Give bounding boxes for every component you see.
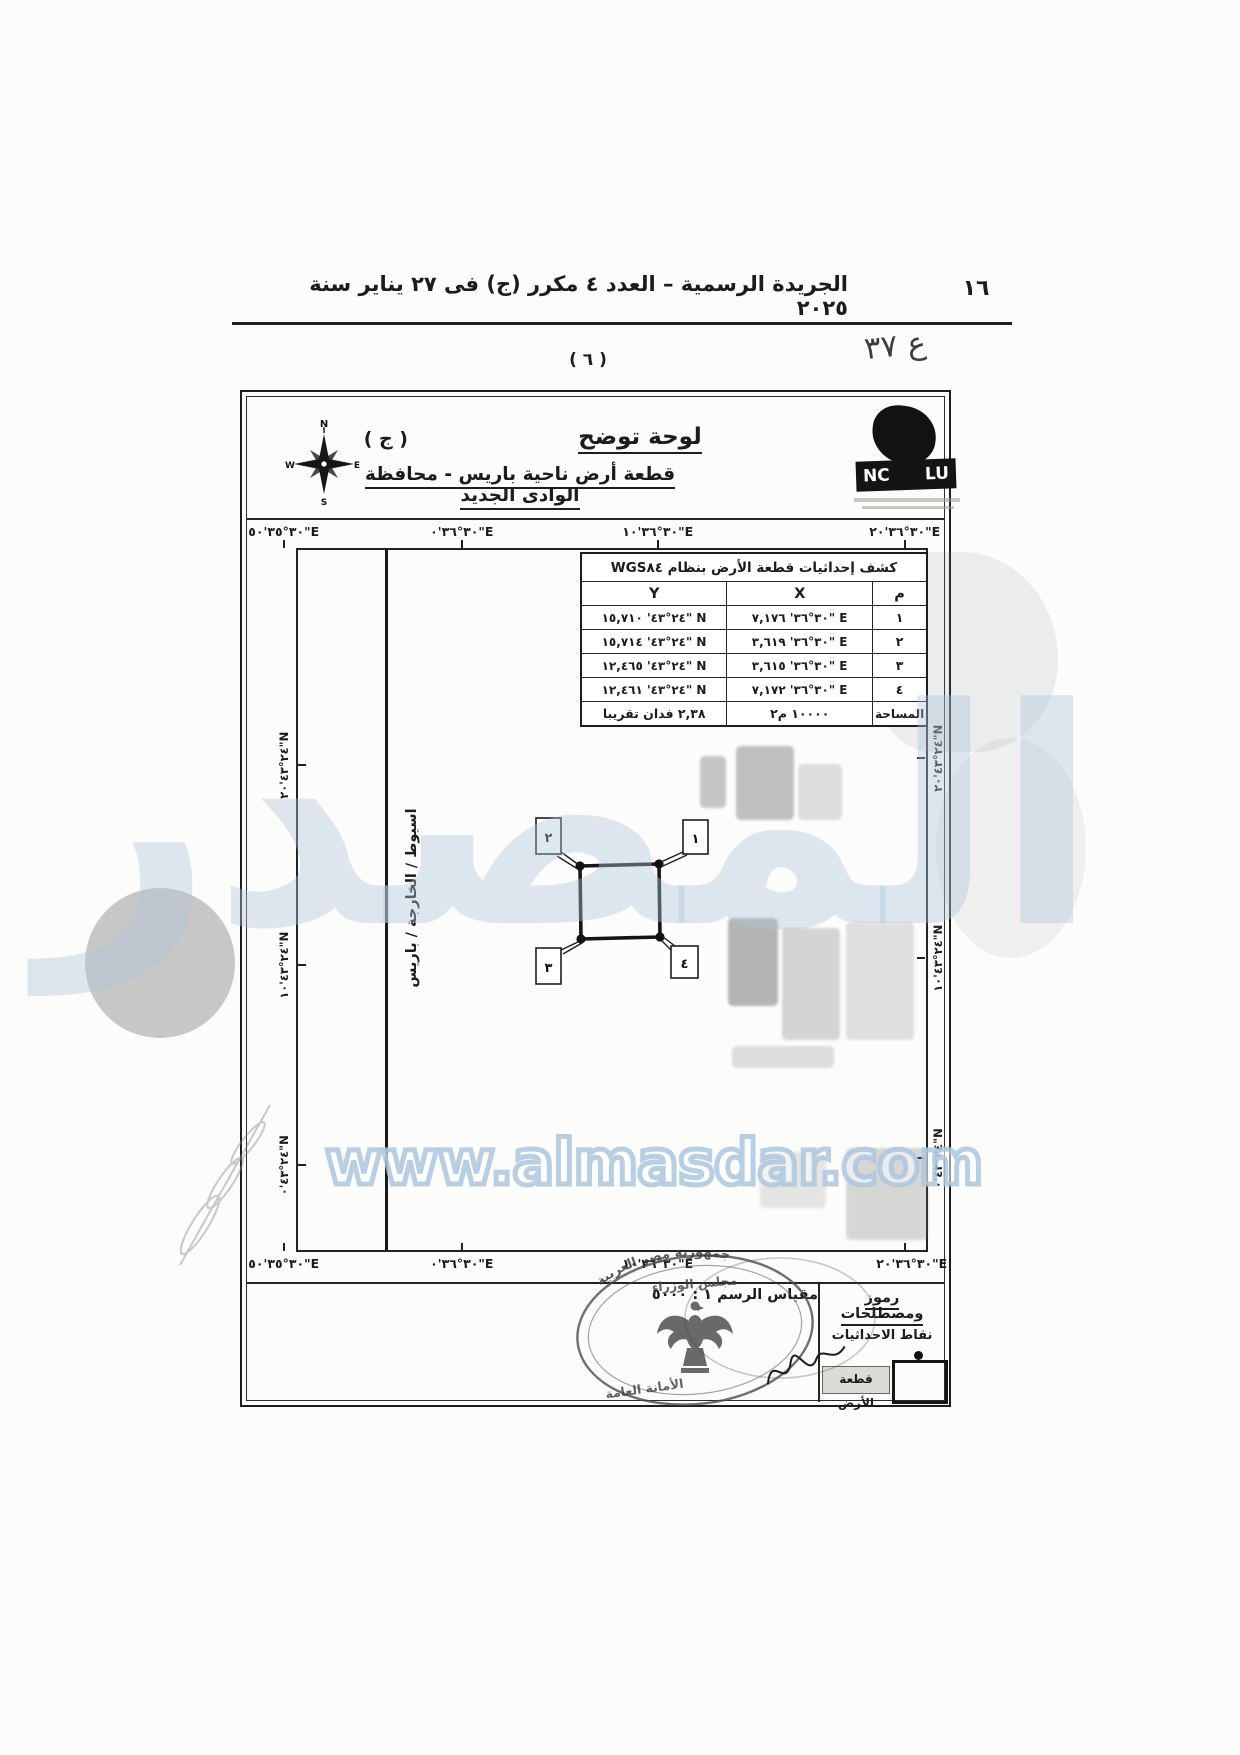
logo-banner: NC LU: [856, 458, 957, 491]
point-y: ٢٤°٤٣' ١٢,٤٦٥" N: [581, 654, 727, 678]
latitude-label-left: ٢٤°٤٣'١٠"N: [277, 910, 291, 1020]
area-square-meters: ١٠٠٠٠ م٢: [727, 702, 873, 727]
point-number: ٤: [873, 678, 927, 702]
point-x: ٣٠°٣٦' ٣,٦١٩" E: [727, 630, 873, 654]
road-label: اسيوط / الخارجة / باريس: [404, 798, 422, 998]
plot-polygon-figure: ٢ ١ ٣ ٤: [520, 800, 740, 1000]
table-row: ٤ ٣٠°٣٦' ٧,١٧٢" E ٢٤°٤٣' ١٢,٤٦١" N: [581, 678, 927, 702]
coordinate-point-symbol: [914, 1351, 923, 1360]
corner-label: ٤: [681, 957, 689, 972]
point-y: ٢٤°٤٣' ١٢,٤٦١" N: [581, 678, 727, 702]
logo-caption-line: [862, 506, 954, 509]
sheet-subtitle-text: قطعة أرض ناحية باريس - محافظة الوادى الج…: [365, 464, 675, 510]
scan-smudge: [798, 764, 842, 820]
eagle-emblem-icon: [657, 1302, 733, 1374]
point-number: ١: [873, 606, 927, 630]
scan-smudge: [846, 922, 914, 1040]
header-rule: [232, 322, 1012, 325]
graticule-tick: [904, 540, 906, 548]
longitude-label-top: ٣٠°٣٦'١٠"E: [603, 524, 713, 539]
longitude-label-bottom: ٣٠°٣٦'٠"E: [407, 1256, 517, 1271]
point-y: ٢٤°٤٣' ١٥,٧١٤" N: [581, 630, 727, 654]
handwritten-note: ع ٣٧: [824, 325, 927, 371]
logo-emblem-icon: [869, 402, 940, 467]
logo-text-left: NC: [863, 466, 890, 487]
compass-south-label: S: [321, 498, 327, 506]
table-row: ١ ٣٠°٣٦' ٧,١٧٦" E ٢٤°٤٣' ١٥,٧١٠" N: [581, 606, 927, 630]
col-header-x: X: [727, 582, 873, 606]
scan-smudge: [846, 1148, 928, 1240]
watermark-blob: [936, 738, 1086, 958]
point-x: ٣٠°٣٦' ٣,٦١٥" E: [727, 654, 873, 678]
scan-smudge: [760, 1152, 826, 1208]
point-x: ٣٠°٣٦' ٧,١٧٦" E: [727, 606, 873, 630]
graticule-tick: [461, 540, 463, 548]
logo-caption-line: [854, 498, 960, 502]
watermark-dot: [85, 888, 235, 1038]
page-number: ١٦: [948, 276, 1004, 301]
compass-north-label: N: [320, 419, 328, 430]
road-line: [385, 549, 388, 1250]
point-y: ٢٤°٤٣' ١٥,٧١٠" N: [581, 606, 727, 630]
point-number: ٣: [873, 654, 927, 678]
compass-west-label: W: [285, 461, 295, 471]
longitude-label-top: ٣٠°٣٥'٥٠"E: [229, 524, 339, 539]
table-row-area: المساحة ١٠٠٠٠ م٢ ٢,٣٨ فدان تقريبا: [581, 702, 927, 727]
graticule-tick: [657, 540, 659, 548]
scan-smudge: [782, 928, 840, 1040]
longitude-label-top: ٣٠°٣٦'٠"E: [407, 524, 517, 539]
coordinates-table-title: كشف إحداثيات قطعة الأرض بنظام WGS٨٤: [581, 553, 927, 582]
title-strip-divider: [247, 518, 945, 520]
col-header-point: م: [873, 582, 927, 606]
plot-boundary: [580, 864, 660, 939]
point-x: ٣٠°٣٦' ٧,١٧٢" E: [727, 678, 873, 702]
stamp-ring-bottom-text: الأمانة العامة: [604, 1376, 684, 1402]
graticule-tick: [283, 540, 285, 548]
gazette-header: الجريدة الرسمية – العدد ٤ مكرر (ج) فى ٢٧…: [300, 272, 848, 320]
table-row: ٢ ٣٠°٣٦' ٣,٦١٩" E ٢٤°٤٣' ١٥,٧١٤" N: [581, 630, 927, 654]
coordinates-table: كشف إحداثيات قطعة الأرض بنظام WGS٨٤ م X …: [580, 552, 928, 727]
ncpslu-logo: NC LU: [856, 402, 960, 516]
area-label: المساحة: [873, 702, 927, 727]
table-row: ٣ ٣٠°٣٦' ٣,٦١٥" E ٢٤°٤٣' ١٢,٤٦٥" N: [581, 654, 927, 678]
latitude-label-right: ٢٤°٤٣'٠"N: [931, 1103, 945, 1213]
gazette-scan-page: الجريدة الرسمية – العدد ٤ مكرر (ج) فى ٢٧…: [0, 0, 1240, 1755]
point-number: ٢: [873, 630, 927, 654]
corner-label: ١: [692, 832, 700, 847]
area-feddan: ٢,٣٨ فدان تقريبا: [581, 702, 727, 727]
logo-text-right: LU: [925, 464, 950, 485]
corner-label: ٣: [545, 961, 553, 976]
figure-number: ( ٦ ): [538, 350, 638, 370]
sheet-title: لوحة توضح: [530, 424, 750, 450]
plate-letter: ( ج ): [348, 428, 408, 450]
latitude-label-right: ٢٤°٤٣'١٠"N: [931, 903, 945, 1013]
corner-label: ٢: [545, 831, 553, 846]
sheet-title-text: لوحة توضح: [578, 424, 701, 454]
scan-smudge: [732, 1046, 834, 1068]
leaf-watermark-icon: [160, 1075, 300, 1275]
scan-smudge: [736, 746, 794, 820]
col-header-y: Y: [581, 582, 727, 606]
plot-symbol: [892, 1360, 948, 1404]
sheet-subtitle: قطعة أرض ناحية باريس - محافظة الوادى الج…: [350, 464, 690, 506]
longitude-label-top: ٣٠°٣٦'٢٠"E: [850, 524, 960, 539]
latitude-label-right: ٢٤°٤٣'٢٠"N: [931, 703, 945, 813]
latitude-label-left: ٢٤°٤٣'٢٠"N: [277, 710, 291, 820]
